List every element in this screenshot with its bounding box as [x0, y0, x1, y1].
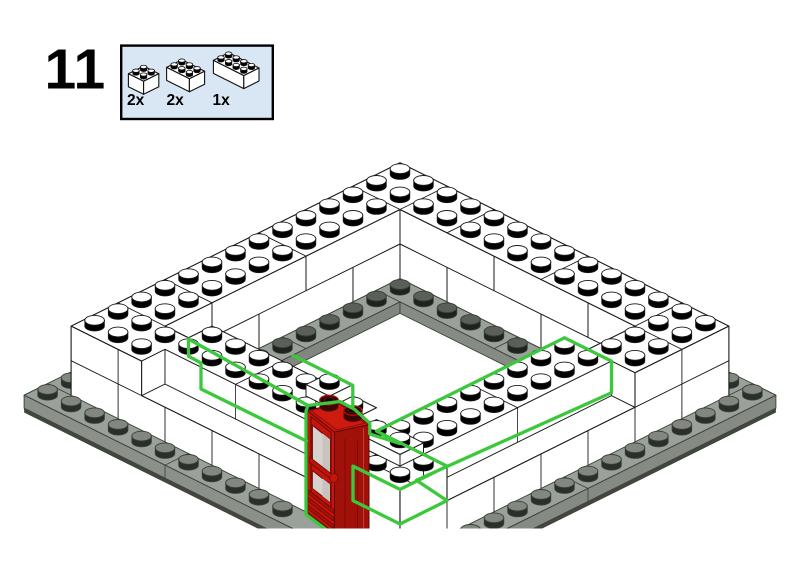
svg-text:11: 11 — [45, 38, 106, 102]
svg-text:2x: 2x — [167, 92, 185, 109]
svg-text:2x: 2x — [127, 92, 145, 109]
svg-text:1x: 1x — [213, 92, 231, 109]
